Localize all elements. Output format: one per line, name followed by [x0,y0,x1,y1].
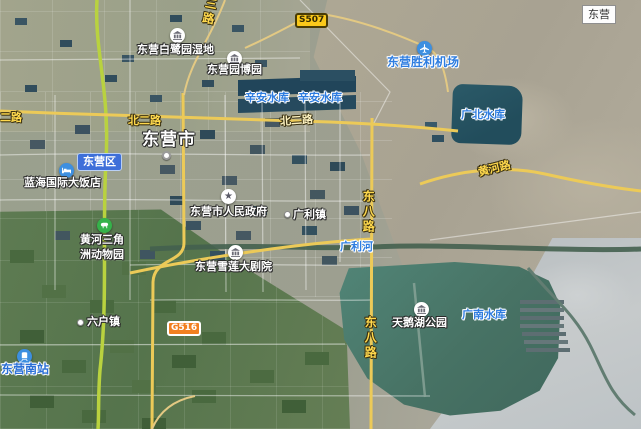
water-label-guangbei: 广北水库 [461,109,505,121]
museum-icon[interactable] [228,245,243,260]
poi-label-zoo-line2[interactable]: 洲动物园 [80,249,124,261]
poi-label-yuanboyuan[interactable]: 东营园博园 [207,64,262,76]
poi-label-guanglizhen[interactable]: 广利镇 [293,209,326,221]
map-corner-title: 东营 [582,5,616,24]
poi-label-liuhuzhen[interactable]: 六户镇 [87,316,120,328]
star-icon[interactable]: ★ [221,189,236,204]
poi-label-swan-lake[interactable]: 天鹅湖公园 [392,317,447,329]
road-label-dongbalu: 东八路 [361,190,374,235]
road-label-beierlu: 北二路 [128,115,161,127]
zoo-icon[interactable] [97,218,112,233]
water-label-xinan: 辛安水库 [298,92,342,104]
city-dot[interactable] [162,151,171,160]
water-label-guangnan: 广南水库 [462,309,506,321]
town-dot[interactable] [284,211,291,218]
water-label-xinan: 辛安水库 [245,92,289,104]
g516-road-badge: G516 [167,321,201,336]
road-label-erlu: 二路 [0,112,22,124]
s507-road-badge: S507 [295,13,328,28]
plane-icon[interactable] [417,41,432,56]
road-label-beierlu: 北二路 [280,114,314,128]
poi-label-bailuyuan[interactable]: 东营白鹭园湿地 [137,44,214,56]
satellite-map[interactable]: ★ 三路 二路 北二路 北二路 东八路 东八路 黄河路 辛安水库 辛安水库 广北… [0,0,641,429]
poi-label-hotel[interactable]: 蓝海国际大饭店 [24,177,101,189]
town-dot[interactable] [77,319,84,326]
poi-label-government[interactable]: 东营市人民政府 [190,206,267,218]
museum-icon[interactable] [414,302,429,317]
district-badge[interactable]: 东营区 [77,153,122,171]
poi-label-airport[interactable]: 东营胜利机场 [387,56,459,69]
city-label[interactable]: 东营市 [142,131,196,150]
water-label-guanglihe: 广利河 [340,241,373,253]
poi-label-zoo-line1[interactable]: 黄河三角 [80,234,124,246]
museum-icon[interactable] [170,28,185,43]
road-label-dongbalu: 东八路 [363,316,376,361]
poi-label-theater[interactable]: 东营雪莲大剧院 [195,261,272,273]
poi-label-south-station[interactable]: 东营南站 [1,363,49,376]
